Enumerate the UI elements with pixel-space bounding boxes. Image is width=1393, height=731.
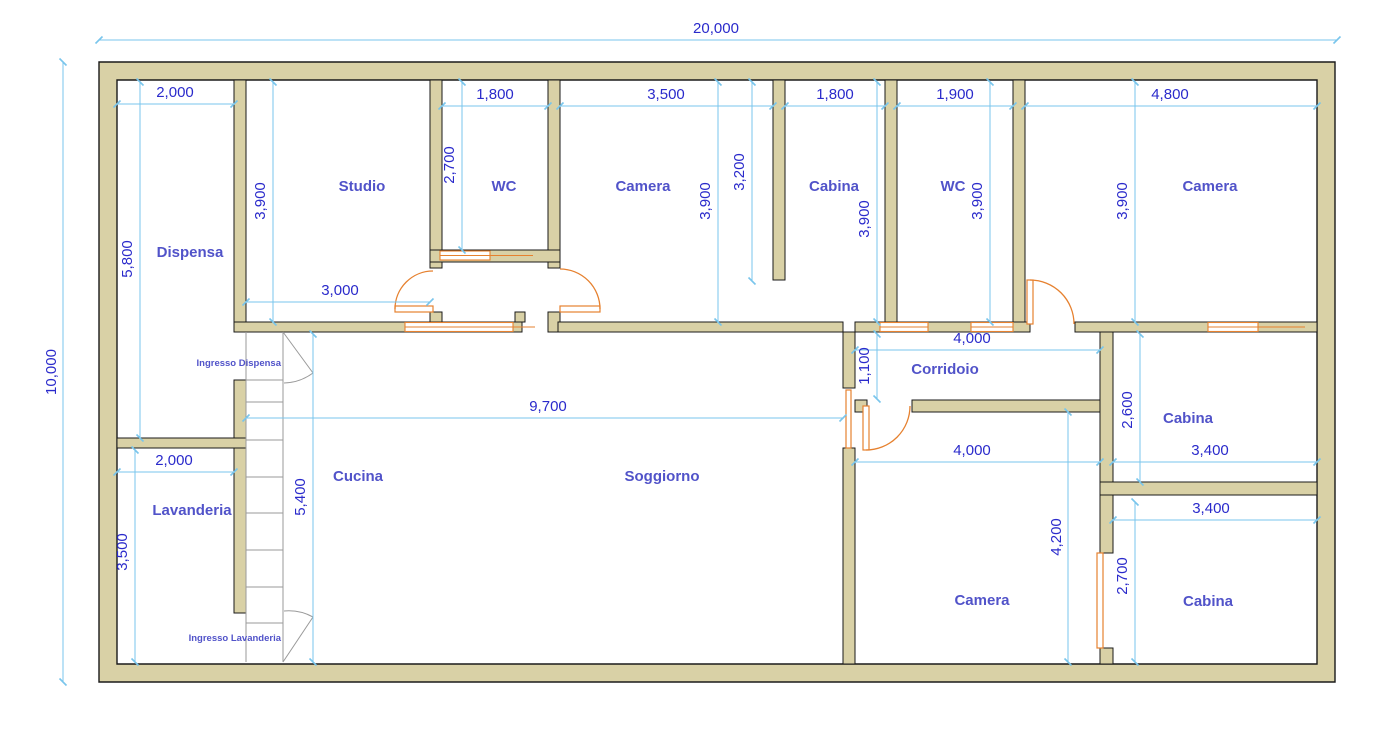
dim-corridoio-width: 1,100 — [856, 347, 873, 385]
room-label-camera-3: Camera — [954, 592, 1010, 609]
wall-segment — [1100, 495, 1113, 553]
wall-segment — [773, 80, 785, 280]
room-label-cabina-2: Cabina — [1163, 410, 1214, 427]
dim-cabina3-width: 3,400 — [1192, 500, 1230, 517]
room-label-camera-1: Camera — [615, 178, 671, 195]
dim-lavanderia-height: 3,500 — [114, 533, 131, 571]
dim-camera1-width: 3,500 — [647, 86, 685, 103]
walls — [99, 62, 1335, 682]
wall-segment — [912, 400, 1100, 412]
room-label-wc-2: WC — [941, 178, 966, 195]
entry-door-swing-top — [283, 332, 313, 383]
wall-segment — [1100, 648, 1113, 664]
dim-wc2-height: 3,900 — [969, 182, 986, 220]
door-studio — [395, 271, 433, 312]
room-label-cucina: Cucina — [333, 468, 384, 485]
dim-wc1-height: 2,700 — [441, 146, 458, 184]
wall-segment — [843, 448, 855, 664]
outer-wall — [99, 62, 1335, 682]
room-label-cabina-1: Cabina — [809, 178, 860, 195]
dim-wc2-width: 1,900 — [936, 86, 974, 103]
floor-plan-canvas: 20,000 2,000 1,800 3,500 1,800 1,900 4,8… — [0, 0, 1393, 731]
room-label-dispensa: Dispensa — [157, 244, 224, 261]
room-label-camera-2: Camera — [1182, 178, 1238, 195]
room-label-wc-1: WC — [492, 178, 517, 195]
dim-cabina3-height: 2,700 — [1114, 557, 1131, 595]
entry-label-ingresso-lavanderia: Ingresso Lavanderia — [189, 633, 282, 644]
room-label-cabina-3: Cabina — [1183, 593, 1234, 610]
room-label-corridoio: Corridoio — [911, 361, 979, 378]
dim-corridoio-length: 4,000 — [953, 330, 991, 347]
dim-wc1-width: 1,800 — [476, 86, 514, 103]
wall-segment — [234, 80, 246, 332]
room-label-studio: Studio — [339, 178, 386, 195]
wall-segment — [843, 332, 855, 388]
wall-segment — [117, 438, 246, 448]
dim-camera2-width: 4,800 — [1151, 86, 1189, 103]
dim-soggiorno-width: 9,700 — [529, 398, 567, 415]
wall-segment — [885, 80, 897, 322]
door-camera-1 — [560, 269, 600, 312]
window — [880, 323, 928, 332]
wall-segment — [1100, 482, 1317, 495]
dim-camera1-height: 3,900 — [697, 182, 714, 220]
dim-studio-height: 3,900 — [252, 182, 269, 220]
dim-cabina2-height: 2,600 — [1119, 391, 1136, 429]
wall-segment — [1013, 80, 1025, 322]
dim-cabina2-width: 3,400 — [1191, 442, 1229, 459]
room-label-soggiorno: Soggiorno — [625, 468, 700, 485]
entry-door-swing-bottom — [283, 611, 313, 662]
dim-cabina1-width: 1,800 — [816, 86, 854, 103]
dim-studio-width: 3,000 — [321, 282, 359, 299]
dim-dispensa-width: 2,000 — [156, 84, 194, 101]
dim-cucina-height: 5,400 — [292, 478, 309, 516]
floor-plan-drawing: 20,000 2,000 1,800 3,500 1,800 1,900 4,8… — [0, 0, 1393, 731]
entry-label-ingresso-dispensa: Ingresso Dispensa — [197, 358, 282, 369]
door-camera-3 — [863, 406, 910, 450]
dim-camera3-width: 4,000 — [953, 442, 991, 459]
sliding-door-corridoio — [846, 390, 851, 448]
sliding-door-cabina-3 — [1097, 553, 1103, 648]
dim-dispensa-height: 5,800 — [119, 240, 136, 278]
dim-camera3-height: 4,200 — [1048, 518, 1065, 556]
door-camera-2 — [1027, 280, 1074, 324]
wall-segment — [1100, 332, 1113, 482]
room-label-lavanderia: Lavanderia — [152, 502, 232, 519]
dim-cabina1-height: 3,900 — [856, 200, 873, 238]
wall-segment — [234, 448, 246, 613]
wall-segment — [558, 322, 843, 332]
dim-divider-wall: 3,200 — [731, 153, 748, 191]
dim-camera2-height: 3,900 — [1114, 182, 1131, 220]
dim-overall-width: 20,000 — [693, 20, 739, 37]
dim-overall-height: 10,000 — [43, 349, 60, 395]
wall-segment — [515, 312, 525, 322]
dim-lavanderia-width: 2,000 — [155, 452, 193, 469]
wall-segment — [234, 380, 246, 438]
windows — [405, 251, 1305, 332]
wall-segment — [548, 80, 560, 268]
